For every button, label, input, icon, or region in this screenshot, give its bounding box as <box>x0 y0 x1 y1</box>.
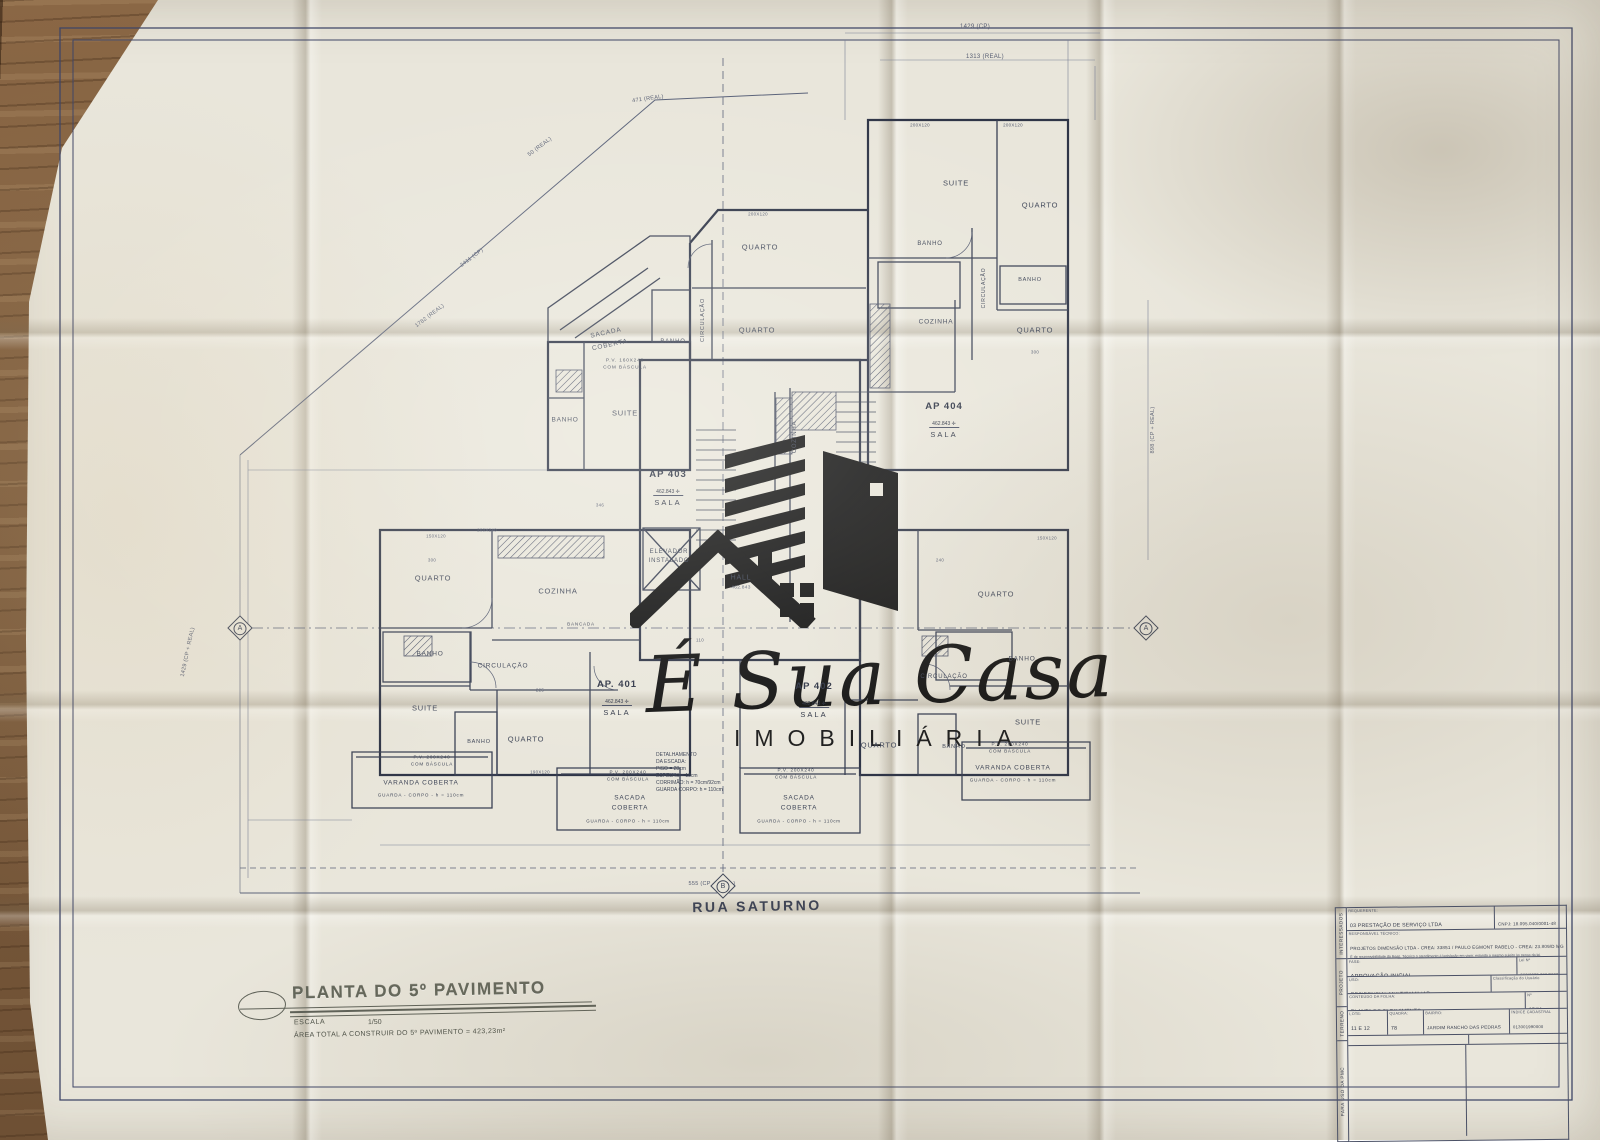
scale-value: 1/50 <box>368 1019 382 1026</box>
street-label: RUA SATURNO <box>692 897 822 915</box>
indice-cell: ÍNDICE CADASTRAL 013001990000 0130019920… <box>1510 1009 1567 1034</box>
cell-caption: QUADRA: <box>1389 1011 1408 1015</box>
area-note: ÁREA TOTAL A CONSTRUIR DO 5º PAVIMENTO =… <box>294 1028 506 1039</box>
topografia-header-cell: USO/FOTO/TOPOGRAFIA <box>1469 1034 1567 1044</box>
requerente-value: 03 PRESTAÇÃO DE SERVIÇO LTDA <box>1350 922 1442 929</box>
quadra-cell: QUADRA: 78 <box>1388 1010 1424 1034</box>
cnpj-value: CNPJ: 18.095.040/0001-48 <box>1498 921 1556 927</box>
cell-caption: BAIRRO: <box>1425 1011 1442 1015</box>
plan-title: PLANTA DO 5º PAVIMENTO <box>292 978 546 1003</box>
cnpj-cell: CNPJ: 18.095.040/0001-48 <box>1495 906 1566 929</box>
folha-cell: Nº 05/11 <box>1526 992 1567 1008</box>
cell-caption: ÍNDICE CADASTRAL <box>1511 1009 1551 1013</box>
title-block: INTERESSADOS PROJETO TERRENO PARA USO DA… <box>1335 905 1569 1142</box>
side-label: INTERESSADOS <box>1338 912 1343 954</box>
cell-caption: USO: <box>1349 977 1359 981</box>
lote-cell: LOTE: 11 E 12 <box>1348 1011 1388 1035</box>
plan-title-stamp: PLANTA DO 5º PAVIMENTO ESCALA 1/50 ÁREA … <box>238 975 618 1051</box>
cell-caption: Lei Nº <box>1519 958 1530 962</box>
responsavel-cell: RESPONSÁVEL TÉCNICO: PROJETOS DIMENSÃO L… <box>1347 929 1566 958</box>
lote-value: 11 E 12 <box>1351 1026 1370 1032</box>
folha-value: 05/11 <box>1529 1007 1543 1008</box>
observacoes-empty-cell <box>1348 1045 1467 1137</box>
indice-value: 013001990000 013001992000 <box>1513 1024 1544 1033</box>
cell-caption: RESPONSÁVEL TÉCNICO: <box>1349 931 1400 936</box>
cell-caption: Classificação do Usuário <box>1493 976 1540 980</box>
cell-caption: CONTEÚDO DA FOLHA: <box>1349 994 1395 998</box>
bairro-value: JARDIM RANCHO DAS PEDRAS <box>1427 1024 1501 1030</box>
responsavel-value: PROJETOS DIMENSÃO LTDA - CREA: 33851 / P… <box>1350 944 1564 951</box>
conteudo-cell: CONTEÚDO DA FOLHA: PLANTA DO 5º PAVIMENT… <box>1348 992 1526 1010</box>
uso-cell: USO: RESIDENCIAL MULTIFAMILIAR <box>1348 976 1492 994</box>
requerente-cell: REQUERENTE: 03 PRESTAÇÃO DE SERVIÇO LTDA <box>1347 907 1495 931</box>
cell-caption: FASE: <box>1349 959 1361 963</box>
scale-label: ESCALA <box>294 1019 325 1027</box>
cell-caption: REQUERENTE: <box>1348 908 1378 912</box>
side-label: PARA USO DA PMC <box>1340 1066 1346 1116</box>
topografia-empty-cell <box>1466 1044 1568 1136</box>
side-label: TERRENO <box>1339 1011 1344 1037</box>
lei-cell: Lei Nº 562/2023 299/2023 <box>1517 957 1566 975</box>
observacoes-header-cell: OBSERVAÇÕES <box>1348 1035 1469 1045</box>
stamp-ellipse-icon <box>237 989 287 1021</box>
bairro-cell: BAIRRO: JARDIM RANCHO DAS PEDRAS <box>1424 1009 1510 1034</box>
fase-cell: FASE: APROVAÇÃO INICIAL <box>1347 957 1517 976</box>
classificacao-cell: Classificação do Usuário <box>1492 975 1567 992</box>
cell-caption: LOTE: <box>1349 1011 1361 1015</box>
side-label: PROJETO <box>1339 970 1344 995</box>
quadra-value: 78 <box>1391 1026 1397 1032</box>
cell-caption: Nº <box>1527 993 1532 997</box>
